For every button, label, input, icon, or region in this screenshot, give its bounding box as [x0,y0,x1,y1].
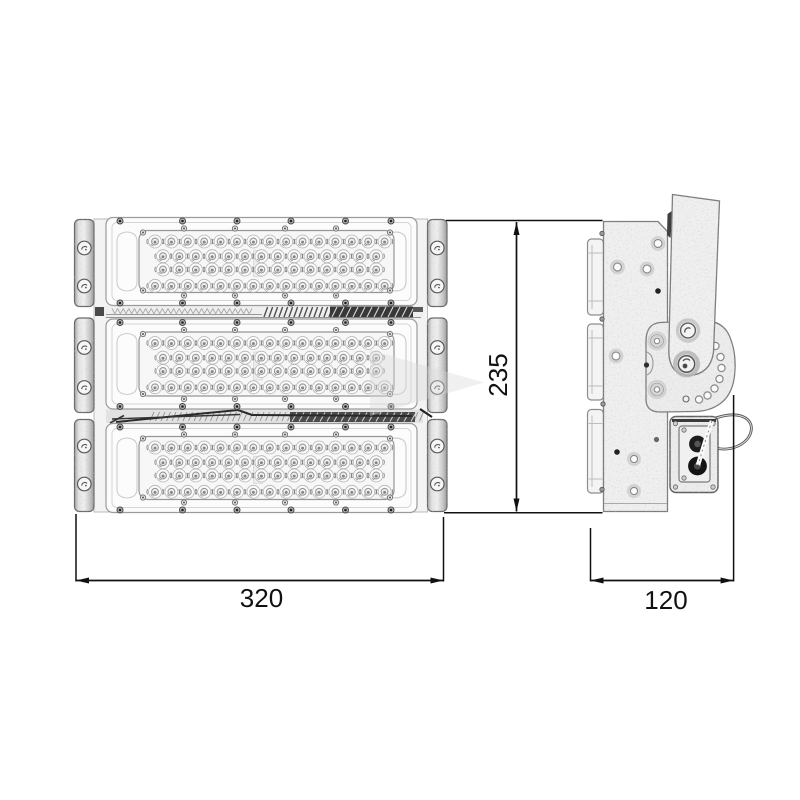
svg-text:120: 120 [644,585,687,615]
svg-text:235: 235 [483,353,513,396]
svg-text:320: 320 [240,583,283,613]
